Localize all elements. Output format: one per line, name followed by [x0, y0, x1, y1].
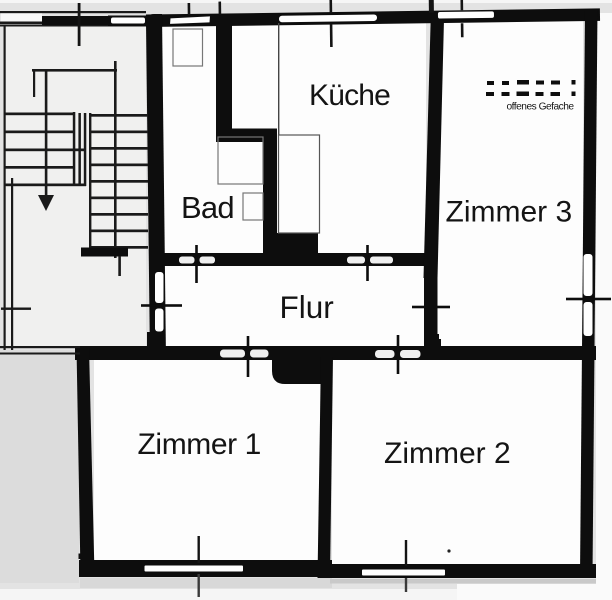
svg-text:Zimmer 1: Zimmer 1 [138, 428, 261, 461]
svg-text:offenes Gefache: offenes Gefache [507, 102, 575, 113]
svg-text:Zimmer 2: Zimmer 2 [384, 437, 511, 470]
svg-text:Zimmer 3: Zimmer 3 [446, 196, 573, 229]
svg-text:Bad: Bad [181, 190, 234, 225]
svg-text:Küche: Küche [309, 79, 390, 112]
svg-text:Flur: Flur [280, 289, 334, 325]
